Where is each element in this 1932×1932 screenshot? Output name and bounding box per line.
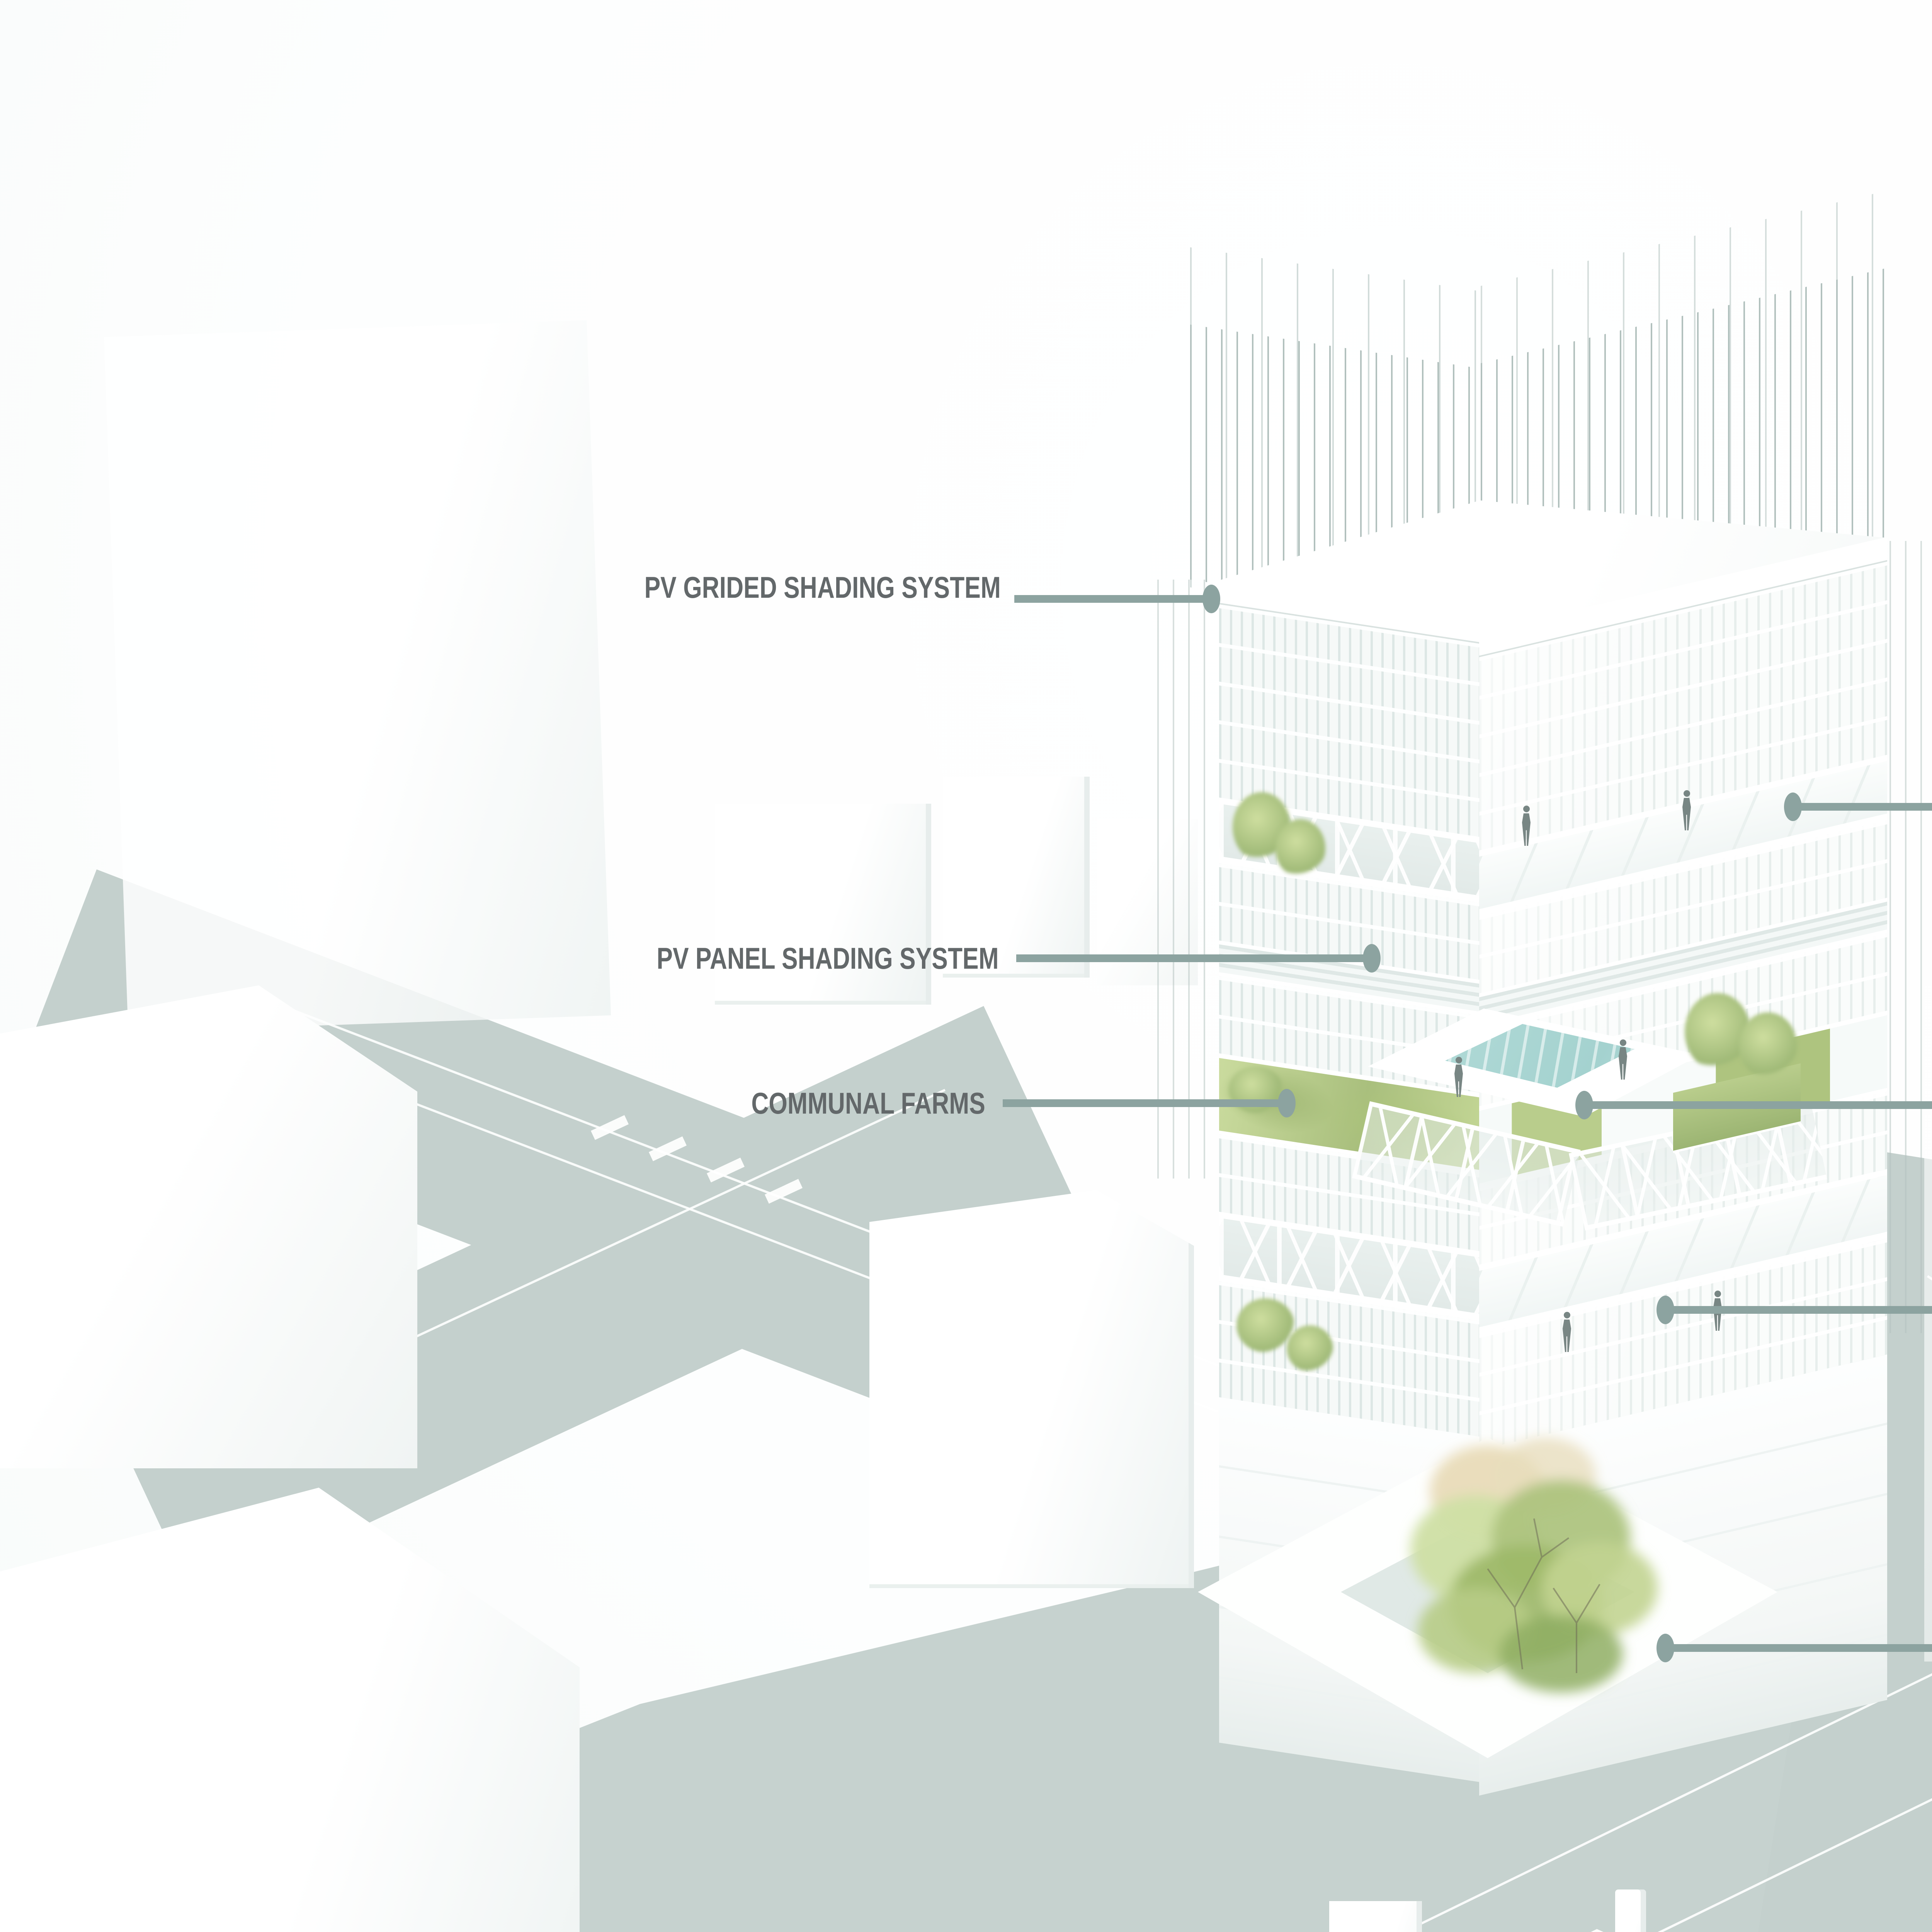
pv-rod-array-side	[1889, 541, 1932, 1333]
tree-canopy	[1685, 993, 1750, 1070]
tree-canopy	[1739, 1012, 1797, 1078]
leader-dot	[1202, 585, 1220, 613]
leader-dot	[1363, 944, 1381, 973]
leader-dot	[1656, 1296, 1674, 1324]
context-building	[869, 1190, 1194, 1588]
leader-dot	[1278, 1089, 1296, 1117]
callout-label-pv-grid: PV GRIDED SHADING SYSTEM	[645, 572, 1001, 602]
tree-canopy	[1287, 1325, 1333, 1372]
leader-line	[1673, 1644, 1932, 1652]
leader-dot	[1575, 1091, 1593, 1119]
leader-dot	[1784, 793, 1802, 821]
leader-line	[1016, 954, 1365, 962]
pv-rod-array-side	[1157, 580, 1215, 1179]
context-building	[0, 985, 417, 1468]
leader-line	[1014, 595, 1204, 603]
architectural-axon-diagram: PV GRIDED SHADING SYSTEM QUIET SPACES, S…	[0, 0, 1932, 1932]
leader-line	[1673, 1306, 1932, 1314]
bollard	[1615, 1889, 1646, 1932]
tree-canopy	[1236, 1298, 1294, 1352]
context-building	[0, 1488, 580, 1932]
person-silhouette	[1617, 1039, 1629, 1080]
person-silhouette	[1561, 1312, 1573, 1352]
person-silhouette	[1520, 806, 1532, 846]
leader-line	[1801, 803, 1932, 811]
atrium-trees	[1360, 1422, 1747, 1716]
person-silhouette	[1453, 1057, 1464, 1097]
person-silhouette	[1681, 790, 1692, 830]
leader-line	[1592, 1101, 1932, 1109]
leader-dot	[1656, 1634, 1674, 1662]
callout-label-communal-farms: COMMUNAL FARMS	[752, 1088, 985, 1118]
context-building	[104, 320, 611, 1032]
leader-line	[1003, 1099, 1280, 1107]
kiosk	[1329, 1901, 1422, 1932]
callout-label-pv-panel: PV PANEL SHADING SYSTEM	[657, 943, 999, 973]
tree-canopy	[1275, 819, 1325, 877]
